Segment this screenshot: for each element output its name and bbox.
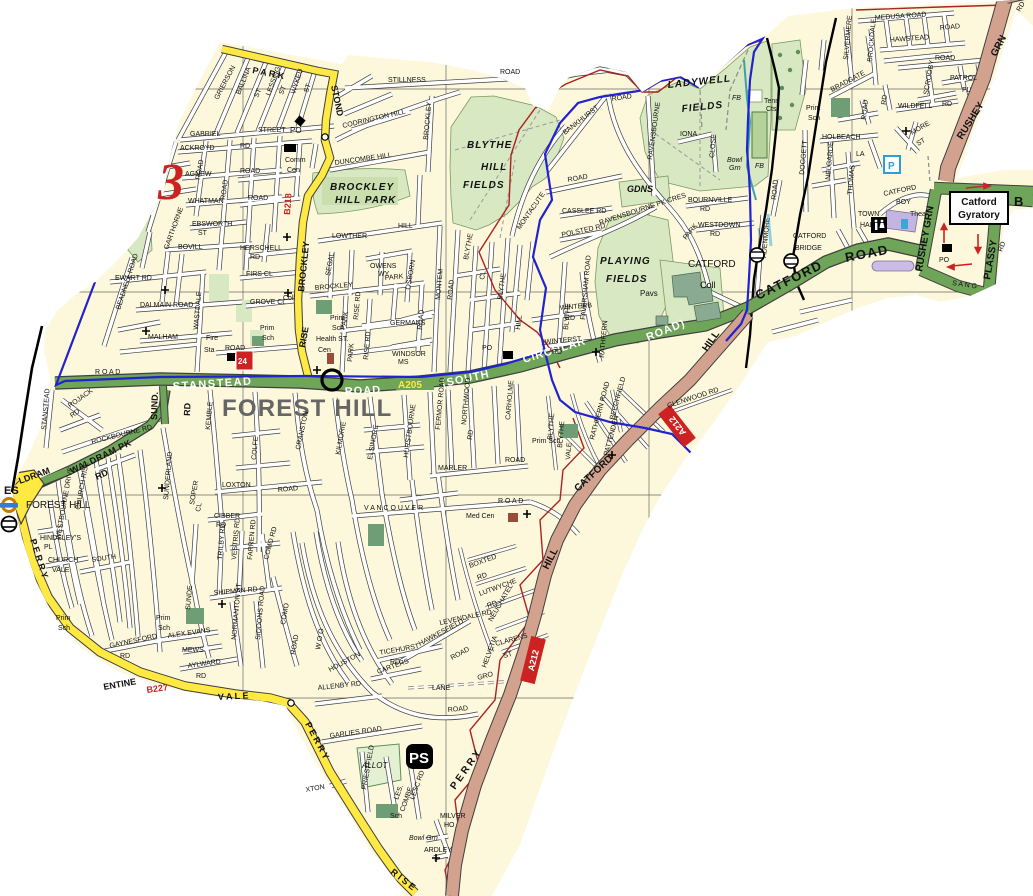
- svg-text:FIRS CL: FIRS CL: [246, 271, 273, 278]
- svg-text:ROAD: ROAD: [345, 384, 382, 398]
- svg-text:Sch: Sch: [58, 625, 70, 632]
- svg-text:CATFORD: CATFORD: [688, 259, 736, 270]
- svg-text:Sch: Sch: [332, 325, 344, 332]
- svg-text:IONA: IONA: [680, 131, 697, 138]
- svg-text:FIELDS: FIELDS: [463, 180, 505, 191]
- svg-text:TOWN: TOWN: [858, 211, 879, 218]
- svg-text:Tenn: Tenn: [764, 98, 779, 105]
- svg-text:MS: MS: [398, 359, 409, 366]
- svg-text:Fire: Fire: [206, 335, 218, 342]
- svg-text:STILLNESS: STILLNESS: [388, 77, 426, 84]
- svg-text:EWART RD: EWART RD: [115, 275, 152, 282]
- svg-text:Grn: Grn: [729, 165, 741, 172]
- svg-text:FB: FB: [755, 163, 764, 170]
- svg-text:RD: RD: [240, 143, 250, 150]
- svg-text:Coll: Coll: [283, 295, 296, 302]
- svg-text:MARLER: MARLER: [438, 465, 467, 472]
- svg-text:ACKROYD: ACKROYD: [180, 145, 215, 152]
- svg-text:SUND.: SUND.: [149, 392, 160, 420]
- svg-text:WINDSOR: WINDSOR: [392, 351, 426, 358]
- svg-text:B: B: [1014, 194, 1023, 209]
- svg-text:HOLBEACH: HOLBEACH: [822, 134, 861, 141]
- svg-text:3: 3: [157, 154, 184, 211]
- svg-text:GROVE CL: GROVE CL: [250, 299, 286, 306]
- svg-text:RD: RD: [182, 402, 192, 416]
- svg-text:Sta: Sta: [204, 347, 215, 354]
- svg-text:HILL: HILL: [481, 162, 507, 173]
- svg-text:Sch: Sch: [262, 335, 274, 342]
- svg-text:RD: RD: [700, 206, 710, 213]
- svg-text:Pavs: Pavs: [640, 289, 658, 298]
- svg-text:RD: RD: [467, 429, 475, 440]
- svg-text:ROAD: ROAD: [935, 55, 955, 62]
- svg-text:CASSLEE RD: CASSLEE RD: [562, 208, 606, 215]
- svg-text:STREET: STREET: [258, 127, 286, 134]
- svg-text:ARDLEY: ARDLEY: [424, 847, 452, 854]
- svg-text:Prim: Prim: [330, 315, 345, 322]
- svg-text:PATROL: PATROL: [950, 75, 977, 82]
- svg-text:Sch: Sch: [158, 625, 170, 632]
- svg-text:Prim: Prim: [156, 615, 171, 622]
- svg-text:LOXTON: LOXTON: [222, 482, 251, 489]
- svg-text:MEWS: MEWS: [182, 647, 204, 654]
- svg-text:CATFORD: CATFORD: [793, 233, 826, 240]
- svg-text:ROAD: ROAD: [505, 457, 525, 464]
- svg-text:HILL: HILL: [398, 223, 413, 230]
- svg-text:ROAD: ROAD: [248, 195, 268, 202]
- svg-text:PLAYING: PLAYING: [600, 256, 651, 267]
- svg-text:V A L E: V A L E: [218, 690, 249, 702]
- svg-text:BLYTHE: BLYTHE: [467, 140, 512, 151]
- svg-text:Catford: Catford: [961, 197, 997, 208]
- svg-text:RD: RD: [552, 349, 562, 356]
- svg-text:Cen: Cen: [287, 167, 300, 174]
- svg-text:PS: PS: [409, 750, 429, 767]
- svg-text:RD: RD: [942, 101, 952, 108]
- svg-text:Thea: Thea: [910, 211, 926, 218]
- svg-text:FB: FB: [732, 95, 741, 102]
- svg-text:BROCKLEY: BROCKLEY: [330, 182, 394, 193]
- svg-text:Prim: Prim: [56, 615, 71, 622]
- svg-text:Sch: Sch: [390, 813, 402, 820]
- svg-text:PO: PO: [939, 257, 950, 264]
- svg-text:MILVER: MILVER: [440, 813, 466, 820]
- svg-text:ST: ST: [198, 230, 208, 237]
- svg-text:Prim: Prim: [260, 325, 275, 332]
- svg-text:BOURNVILLE: BOURNVILLE: [688, 197, 733, 204]
- svg-text:WILDFELL: WILDFELL: [898, 103, 932, 110]
- svg-text:B218: B218: [282, 193, 293, 215]
- svg-text:ROAD: ROAD: [500, 69, 520, 76]
- svg-text:Cen: Cen: [318, 347, 331, 354]
- svg-text:BRIDGE: BRIDGE: [795, 245, 822, 252]
- svg-text:LA: LA: [856, 151, 865, 158]
- svg-text:GABRIEL: GABRIEL: [190, 131, 220, 138]
- svg-text:CHURCH: CHURCH: [48, 557, 78, 564]
- svg-text:Gyratory: Gyratory: [958, 210, 1000, 221]
- svg-text:VALE: VALE: [52, 567, 70, 574]
- svg-text:BOY: BOY: [896, 199, 911, 206]
- svg-text:DALMAIN ROAD: DALMAIN ROAD: [140, 302, 193, 309]
- svg-text:V A N C O U V E R: V A N C O U V E R: [364, 505, 423, 512]
- svg-text:R O A D: R O A D: [95, 369, 120, 376]
- svg-text:Comm: Comm: [285, 157, 306, 164]
- svg-text:Bowl Grn: Bowl Grn: [409, 835, 438, 842]
- svg-text:GDNS: GDNS: [627, 184, 653, 194]
- svg-text:Cts: Cts: [766, 106, 777, 113]
- svg-text:P: P: [888, 161, 895, 172]
- svg-text:RD: RD: [120, 653, 130, 660]
- svg-text:Bowl: Bowl: [727, 157, 743, 164]
- svg-text:24: 24: [238, 357, 247, 366]
- svg-text:A205: A205: [398, 380, 422, 391]
- svg-text:PO: PO: [482, 345, 493, 352]
- svg-text:RD: RD: [881, 94, 889, 105]
- svg-text:Prim: Prim: [806, 105, 821, 112]
- svg-text:HINDSLEY'S: HINDSLEY'S: [40, 535, 81, 542]
- svg-text:FIELDS: FIELDS: [606, 274, 648, 285]
- svg-text:HO: HO: [444, 822, 455, 829]
- svg-text:PL: PL: [44, 544, 53, 551]
- svg-text:BOVILL: BOVILL: [178, 244, 203, 251]
- svg-text:MALHAM: MALHAM: [148, 334, 178, 341]
- svg-text:HERSCHELL: HERSCHELL: [240, 245, 282, 252]
- svg-text:HILL PARK: HILL PARK: [335, 195, 396, 206]
- svg-text:ROAD: ROAD: [240, 168, 260, 175]
- svg-text:PO: PO: [290, 126, 302, 135]
- svg-text:Coll: Coll: [700, 280, 716, 290]
- svg-text:Sch: Sch: [808, 115, 820, 122]
- svg-text:WY: WY: [378, 271, 390, 278]
- svg-text:RD: RD: [250, 254, 260, 261]
- svg-text:WHATMAN: WHATMAN: [188, 198, 224, 205]
- svg-text:RD: RD: [710, 231, 720, 238]
- svg-text:WESTDOWN: WESTDOWN: [698, 222, 740, 229]
- svg-text:FOREST HILL: FOREST HILL: [26, 500, 91, 511]
- svg-text:Med Cen: Med Cen: [466, 513, 495, 520]
- svg-text:RD: RD: [390, 659, 400, 666]
- svg-text:LOWTHER: LOWTHER: [332, 233, 367, 240]
- svg-text:ES: ES: [4, 485, 19, 497]
- svg-text:R O A D: R O A D: [498, 498, 523, 505]
- svg-text:OWENS: OWENS: [370, 263, 397, 270]
- svg-text:Health ST.: Health ST.: [316, 336, 348, 343]
- svg-text:LANE: LANE: [432, 685, 451, 692]
- svg-text:RD: RD: [196, 673, 206, 680]
- svg-text:PL: PL: [962, 87, 971, 94]
- svg-text:EBSWORTH: EBSWORTH: [192, 221, 232, 228]
